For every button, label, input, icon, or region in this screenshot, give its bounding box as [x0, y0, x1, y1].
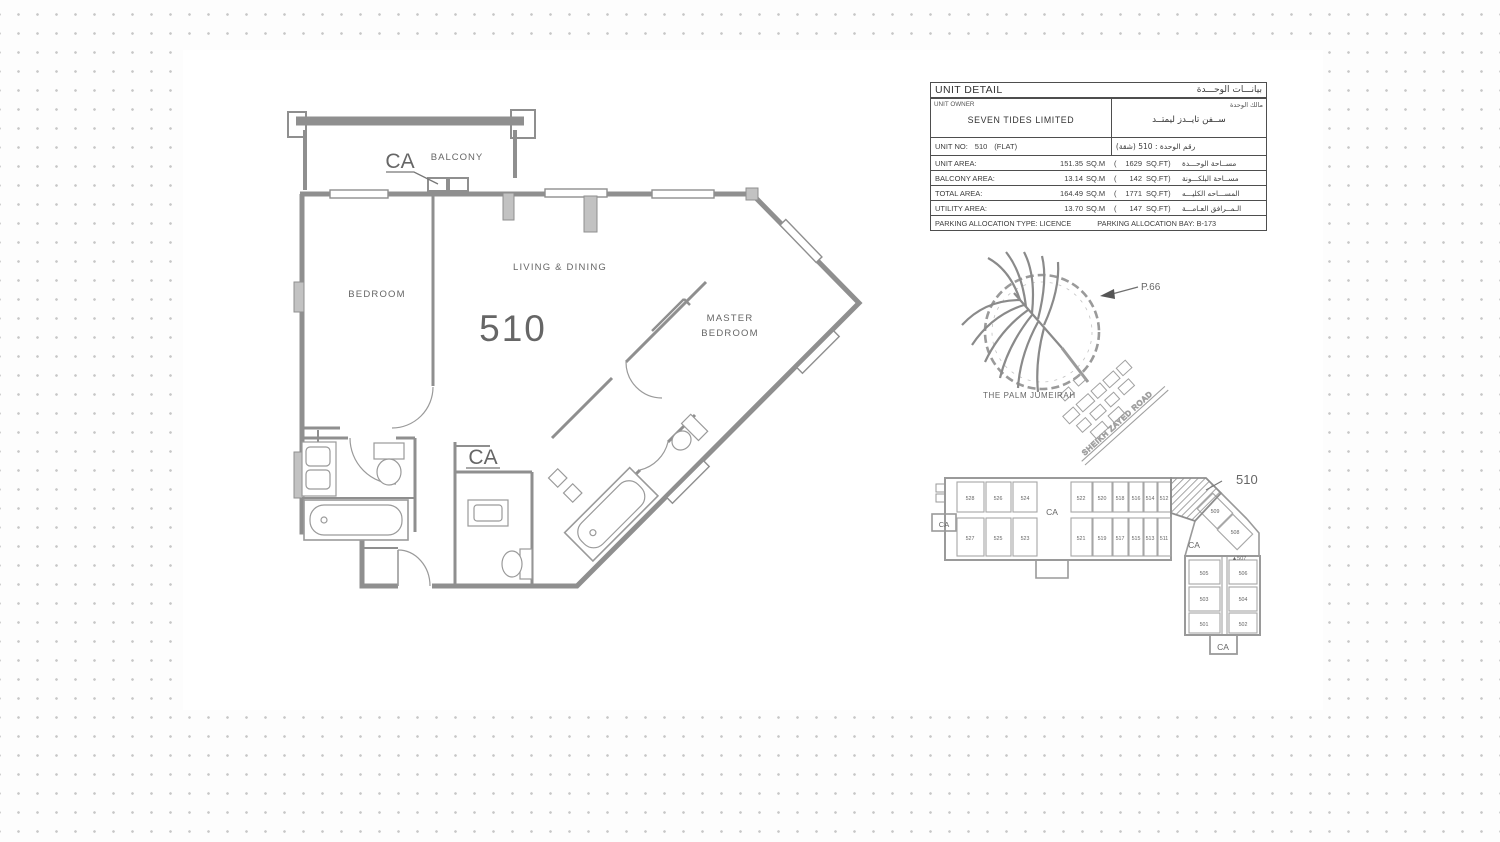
svg-text:511: 511	[1160, 536, 1168, 542]
ca-balcony-label: CA	[385, 150, 414, 173]
owner-value-ar: ســفن تايــدز ليمتــد	[1112, 115, 1266, 125]
unit-no-ar: رقم الوحدة : 510 (شقة)	[1112, 142, 1266, 151]
parking-type: PARKING ALLOCATION TYPE: LICENCE	[935, 219, 1071, 228]
area-label: UNIT AREA:	[935, 159, 1023, 168]
svg-text:512: 512	[1160, 496, 1169, 502]
living-dining-label: LIVING & DINING	[513, 262, 607, 273]
svg-text:517: 517	[1116, 536, 1125, 542]
svg-text:504: 504	[1239, 597, 1248, 603]
ca-bottom-label: CA	[1217, 642, 1229, 652]
mainland-blocks: SHEIKH ZAYED ROAD	[1038, 337, 1169, 465]
svg-text:503: 503	[1200, 597, 1209, 603]
svg-text:502: 502	[1239, 622, 1248, 628]
parking-row: PARKING ALLOCATION TYPE: LICENCE PARKING…	[931, 216, 1266, 230]
svg-text:514: 514	[1146, 496, 1155, 502]
area-label: BALCONY AREA:	[935, 174, 1023, 183]
keyplan-unit-numbers: 528 526 524 522 520 518 516 514 512 527 …	[966, 496, 1248, 628]
svg-text:506: 506	[1239, 571, 1248, 577]
svg-text:521: 521	[1077, 536, 1086, 542]
master-bedroom-label-1: MASTER	[707, 313, 754, 324]
unit-number-label: 510	[479, 308, 547, 349]
location-map: SHEIKH ZAYED ROAD P.66 THE PALM JUMEIRAH	[952, 246, 1278, 464]
svg-text:528: 528	[966, 496, 975, 502]
ca-left-label: CA	[939, 520, 949, 529]
palm-island	[962, 252, 1099, 392]
svg-text:519: 519	[1098, 536, 1107, 542]
svg-text:505: 505	[1200, 571, 1209, 577]
key-plan: 510 528 526 524 522 520 518 516 514 512 …	[925, 455, 1275, 680]
floor-plan: CA BALCONY BEDROOM LIVING & DINING 510 M…	[258, 88, 906, 632]
area-row: TOTAL AREA: 164.49 SQ.M ( 1771 SQ.FT) ال…	[931, 186, 1266, 201]
p66-label: P.66	[1141, 282, 1161, 293]
svg-text:520: 520	[1098, 496, 1107, 502]
owner-label-en: UNIT OWNER	[934, 101, 974, 108]
windows	[330, 189, 839, 503]
svg-text:516: 516	[1132, 496, 1141, 502]
ca-bath-label: CA	[468, 446, 497, 469]
unit-detail-table: UNIT DETAIL بيانـــات الوحـــدة UNIT OWN…	[930, 82, 1267, 231]
unit-no-row: UNIT NO: 510 (FLAT) رقم الوحدة : 510 (شق…	[931, 138, 1266, 156]
svg-text:527: 527	[966, 536, 975, 542]
unit-507-marker: ▲507	[1232, 556, 1247, 562]
balcony-label: BALCONY	[431, 152, 483, 163]
svg-text:508: 508	[1231, 530, 1240, 536]
svg-text:518: 518	[1116, 496, 1125, 502]
palm-fronds	[962, 252, 1062, 392]
area-row: UTILITY AREA: 13.70 SQ.M ( 147 SQ.FT) ال…	[931, 201, 1266, 216]
parking-bay: PARKING ALLOCATION BAY: B-173	[1097, 219, 1216, 228]
road-label: SHEIKH ZAYED ROAD	[1080, 389, 1154, 457]
table-header: UNIT DETAIL بيانـــات الوحـــدة	[931, 83, 1266, 99]
area-row: UNIT AREA: 151.35 SQ.M ( 1629 SQ.FT) مسـ…	[931, 156, 1266, 171]
unit-no-value: 510	[975, 142, 988, 151]
pointer: P.66	[1100, 282, 1161, 299]
ca-wing-label: CA	[1188, 540, 1200, 550]
owner-row: UNIT OWNER SEVEN TIDES LIMITED مالك الوح…	[931, 99, 1266, 138]
owner-value-en: SEVEN TIDES LIMITED	[931, 115, 1111, 125]
road-lines	[1082, 386, 1169, 465]
unit-no-suffix: (FLAT)	[994, 142, 1017, 151]
svg-text:513: 513	[1146, 536, 1155, 542]
svg-text:522: 522	[1077, 496, 1086, 502]
svg-text:515: 515	[1132, 536, 1141, 542]
keyplan-510-label: 510	[1236, 472, 1258, 487]
svg-text:525: 525	[994, 536, 1003, 542]
bedroom-label: BEDROOM	[348, 289, 406, 300]
owner-label-ar: مالك الوحدة	[1230, 101, 1263, 109]
unit-no-label: UNIT NO:	[935, 142, 968, 151]
master-bedroom-label-2: BEDROOM	[701, 328, 759, 339]
svg-text:501: 501	[1200, 622, 1209, 628]
palm-jumeirah-label: THE PALM JUMEIRAH	[983, 391, 1076, 400]
area-row: BALCONY AREA: 13.14 SQ.M ( 142 SQ.FT) مس…	[931, 171, 1266, 186]
keyplan-unit-cells	[957, 482, 1257, 633]
table-title-en: UNIT DETAIL	[935, 84, 1003, 96]
svg-text:509: 509	[1211, 509, 1220, 515]
area-label: UTILITY AREA:	[935, 204, 1023, 213]
area-label: TOTAL AREA:	[935, 189, 1023, 198]
svg-text:523: 523	[1021, 536, 1030, 542]
p66-arrow-icon	[1100, 289, 1115, 299]
svg-text:526: 526	[994, 496, 1003, 502]
ca-corridor-label: CA	[1046, 507, 1058, 517]
svg-text:524: 524	[1021, 496, 1030, 502]
table-title-ar: بيانـــات الوحـــدة	[1197, 85, 1262, 95]
